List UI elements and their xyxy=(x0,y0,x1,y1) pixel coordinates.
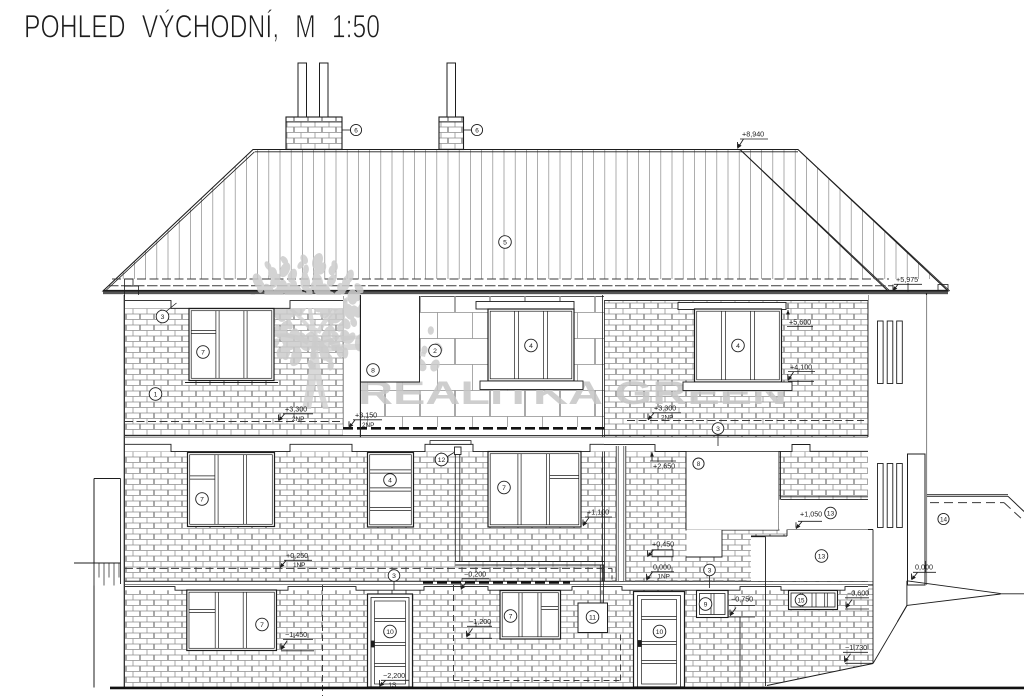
svg-text:+3,300: +3,300 xyxy=(285,405,307,414)
svg-text:10: 10 xyxy=(656,629,664,636)
svg-text:10: 10 xyxy=(386,629,394,636)
svg-text:+3,300: +3,300 xyxy=(654,404,676,413)
svg-text:8: 8 xyxy=(697,461,701,468)
svg-text:13: 13 xyxy=(827,510,835,517)
svg-text:5: 5 xyxy=(503,239,507,246)
svg-text:−1,450: −1,450 xyxy=(285,630,307,639)
svg-text:6: 6 xyxy=(475,127,479,134)
svg-text:+5,600: +5,600 xyxy=(789,318,811,327)
svg-text:+0,450: +0,450 xyxy=(652,540,674,549)
svg-text:+1,100: +1,100 xyxy=(587,508,609,517)
svg-text:−2,200: −2,200 xyxy=(383,671,405,680)
svg-text:7: 7 xyxy=(201,349,205,356)
svg-text:+2,650: +2,650 xyxy=(653,461,675,470)
svg-text:−1,200: −1,200 xyxy=(469,617,491,626)
svg-text:1: 1 xyxy=(154,391,158,398)
svg-text:3: 3 xyxy=(716,426,720,433)
svg-text:3: 3 xyxy=(392,573,396,580)
svg-text:1S: 1S xyxy=(389,682,397,689)
svg-text:+0,250: +0,250 xyxy=(286,551,308,560)
svg-text:2NP: 2NP xyxy=(292,416,304,423)
svg-text:15: 15 xyxy=(798,597,805,604)
svg-text:7: 7 xyxy=(502,485,506,492)
svg-text:−0,200: −0,200 xyxy=(464,570,486,579)
svg-text:+4,100: +4,100 xyxy=(790,362,812,371)
svg-text:6: 6 xyxy=(354,127,358,134)
svg-text:−0,750: −0,750 xyxy=(731,595,753,604)
svg-text:14: 14 xyxy=(940,516,948,523)
svg-text:3: 3 xyxy=(708,567,712,574)
svg-text:0,000: 0,000 xyxy=(653,563,671,572)
svg-text:2NP: 2NP xyxy=(661,415,673,422)
svg-text:4: 4 xyxy=(388,477,392,484)
svg-text:4: 4 xyxy=(529,343,533,350)
svg-text:7: 7 xyxy=(200,496,204,503)
svg-text:0,000: 0,000 xyxy=(915,563,933,572)
svg-text:2: 2 xyxy=(433,348,437,355)
svg-text:+5,975: +5,975 xyxy=(896,275,918,284)
svg-text:2NP: 2NP xyxy=(362,422,374,429)
svg-text:+1,050: +1,050 xyxy=(800,510,822,519)
svg-text:+3,150: +3,150 xyxy=(355,411,377,420)
svg-text:12: 12 xyxy=(438,457,446,464)
svg-text:4: 4 xyxy=(736,343,740,350)
svg-text:13: 13 xyxy=(818,553,826,560)
svg-text:11: 11 xyxy=(589,614,596,621)
svg-text:7: 7 xyxy=(509,613,513,620)
svg-text:7: 7 xyxy=(260,622,264,629)
svg-text:+8,940: +8,940 xyxy=(742,130,764,139)
svg-text:POHLED VÝCHODNÍ, M 1:50: POHLED VÝCHODNÍ, M 1:50 xyxy=(24,9,380,45)
svg-text:−1,730: −1,730 xyxy=(845,643,867,652)
svg-text:3: 3 xyxy=(161,314,165,321)
svg-text:9: 9 xyxy=(704,601,708,608)
svg-text:1NP: 1NP xyxy=(293,562,305,569)
svg-text:−0,600: −0,600 xyxy=(847,589,869,598)
svg-text:8: 8 xyxy=(371,367,375,374)
svg-text:1NP: 1NP xyxy=(658,574,670,581)
